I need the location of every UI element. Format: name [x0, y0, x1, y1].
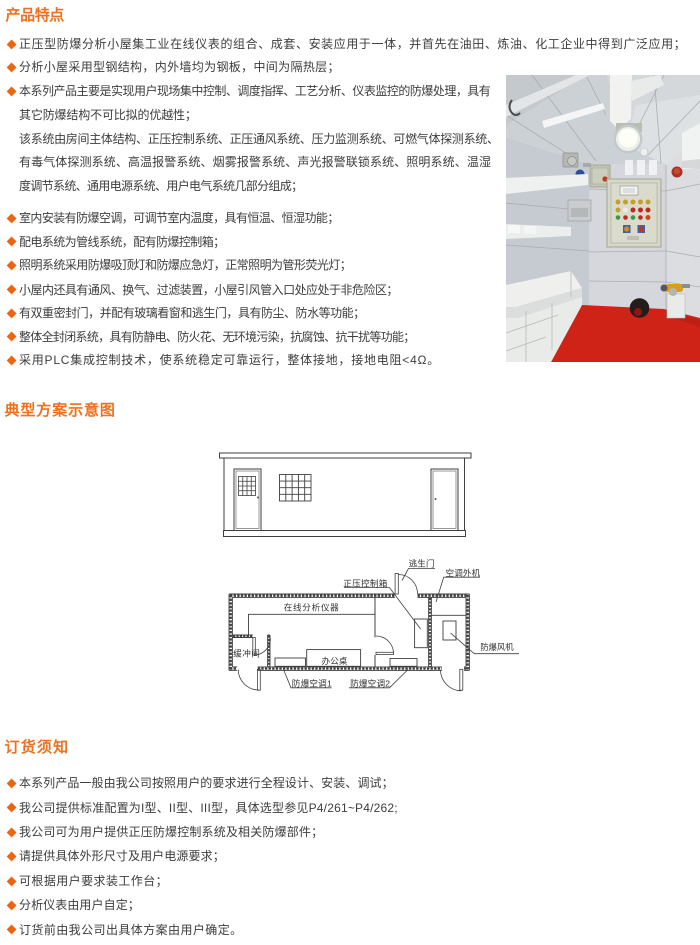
- svg-text:空调外机: 空调外机: [446, 567, 481, 578]
- svg-text:防爆空调2: 防爆空调2: [350, 678, 390, 689]
- svg-text:缓冲间: 缓冲间: [233, 648, 260, 659]
- svg-text:在线分析仪器: 在线分析仪器: [284, 602, 340, 613]
- svg-text:防爆风机: 防爆风机: [480, 642, 514, 652]
- svg-text:防爆空调1: 防爆空调1: [292, 678, 332, 689]
- svg-text:正压控制箱: 正压控制箱: [343, 577, 388, 588]
- svg-text:逃生门: 逃生门: [409, 558, 435, 569]
- svg-text:办公桌: 办公桌: [322, 655, 348, 666]
